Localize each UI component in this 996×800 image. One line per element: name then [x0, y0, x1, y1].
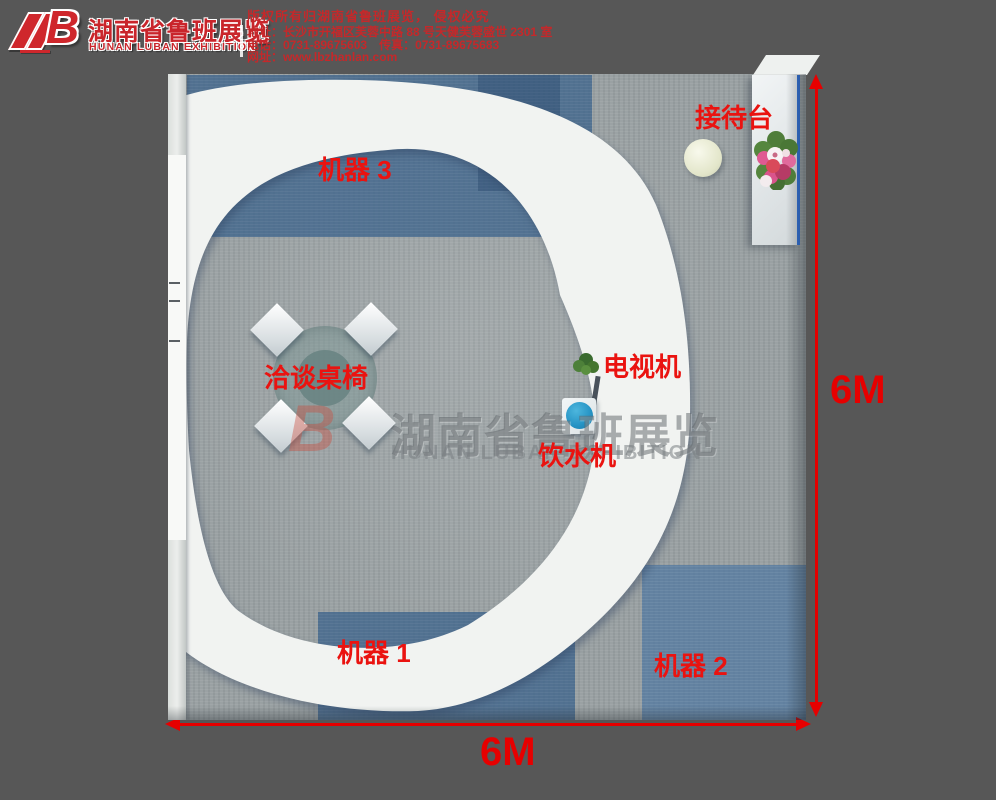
company-info-block: 版权所有归湖南省鲁班展览， 侵权必究 地址：长沙市开福区芙蓉中路 88 号天健芙… [247, 11, 552, 64]
arrowhead-down-icon [809, 702, 823, 717]
dimension-height: 6M [830, 368, 886, 413]
dimension-line-horizontal [178, 723, 798, 726]
reception-stool [684, 139, 722, 177]
water-dispenser-bottle [566, 402, 593, 429]
website-line: 网址：www.lbzhanlan.com [247, 51, 552, 64]
reception-desk-top-sliver [753, 55, 820, 75]
address-line: 地址：长沙市开福区芙蓉中路 88 号天健芙蓉盛世 2301 室 [247, 26, 552, 39]
left-wall-panel [168, 155, 186, 540]
label-machine1: 机器 1 [337, 633, 411, 670]
dimension-line-vertical [815, 82, 818, 706]
copyright-line: 版权所有归湖南省鲁班展览， 侵权必究 [247, 11, 552, 24]
brand-title-en: HUNAN LUBAN EXHIBITION [89, 41, 256, 53]
label-reception: 接待台 [695, 98, 773, 135]
logo-underline [20, 50, 50, 53]
left-wall [168, 74, 186, 720]
arrowhead-up-icon [809, 74, 823, 89]
header-divider [240, 25, 243, 57]
label-machine3: 机器 3 [318, 150, 392, 187]
potted-plant [572, 348, 600, 376]
label-water-dispenser: 饮水机 [538, 436, 616, 473]
booth-floorplan: B 湖南省鲁班展览 HUNAN LUBAN EXHIBITION 接待台 机器 … [168, 74, 806, 720]
wall-seam [169, 340, 180, 342]
label-machine2: 机器 2 [654, 646, 728, 683]
wall-seam [169, 282, 180, 284]
company-logo: B [16, 6, 88, 54]
logo-letter: B [46, 0, 79, 54]
wall-seam [169, 300, 180, 302]
water-dispenser [562, 398, 596, 434]
booth-bottom-edge-shade [168, 706, 806, 720]
label-tv: 电视机 [603, 347, 681, 384]
label-negotiation-table: 洽谈桌椅 [264, 358, 368, 395]
flower-bouquet [753, 130, 799, 190]
dimension-width: 6M [480, 730, 536, 775]
